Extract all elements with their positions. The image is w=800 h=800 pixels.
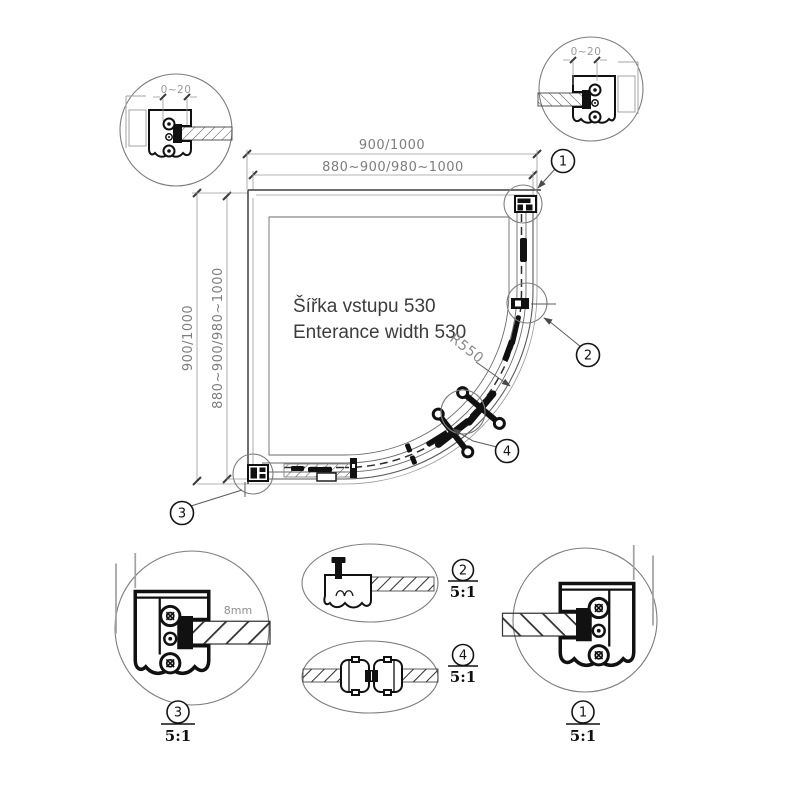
plan-view: 900/1000 880~900/980~1000 900/1000 880~9…: [171, 138, 600, 525]
detail-1-scale: 5:1: [570, 727, 596, 745]
wall-bracket-top-right: [515, 196, 536, 212]
balloon-3-number: 3: [178, 507, 186, 522]
detail-label-3: 3 5:1: [161, 701, 195, 745]
dim-top-inner: 880~900/980~1000: [322, 160, 464, 175]
dim-left-outer: 900/1000: [181, 305, 196, 371]
balloon-2-number: 2: [584, 349, 592, 364]
detail-middle-top: 2 5:1: [302, 544, 478, 622]
glass-section-8mm: [183, 621, 271, 644]
detail-3-scale: 5:1: [165, 727, 191, 745]
guide-block: [317, 473, 336, 481]
entrance-width-label-en: Enterance width 530: [293, 322, 466, 343]
detail-label-1: 1 5:1: [566, 701, 600, 745]
glass-rail-assembly: [255, 206, 537, 484]
detail-2-number: 2: [459, 564, 467, 579]
door-stop-top: [511, 298, 529, 309]
glass-section: [176, 127, 232, 140]
dim-left-inner: 880~900/980~1000: [211, 267, 226, 409]
detail-3-number: 3: [174, 706, 182, 721]
wall-bracket-bottom-left: [248, 465, 268, 481]
detail-4-scale: 5:1: [450, 668, 476, 686]
glass-section: [503, 613, 587, 636]
roller-bottom-2: [308, 467, 332, 472]
detail-top-left: 0~20: [120, 74, 232, 186]
dim-top-outer: 900/1000: [359, 138, 425, 153]
detail-bottom-right: 1 5:1: [503, 545, 658, 745]
detail-label-4: 4 5:1: [448, 645, 478, 687]
balloon-3: 3: [171, 482, 246, 525]
detail-label-2: 2 5:1: [448, 560, 478, 602]
balloon-4-number: 4: [503, 445, 511, 460]
detail-2-scale: 5:1: [450, 583, 476, 601]
magnet-profile-right: [374, 660, 402, 692]
radius-label: R550: [446, 331, 486, 367]
detail-middle-bottom: 4 5:1: [302, 641, 478, 713]
detail-4-number: 4: [459, 649, 467, 664]
detail-top-right: 0~20: [538, 37, 643, 141]
technical-drawing-canvas: 900/1000 880~900/980~1000 900/1000 880~9…: [0, 0, 800, 800]
roller-right: [520, 238, 527, 262]
glass-section: [538, 93, 588, 106]
adjust-range-label-right: 0~20: [571, 46, 602, 58]
roller-bottom-1: [291, 466, 304, 471]
door-stop-bottom: [350, 458, 357, 478]
balloon-1-number: 1: [559, 155, 567, 170]
dimension-top: 900/1000 880~900/980~1000: [243, 138, 541, 291]
balloon-2: 2: [531, 304, 600, 367]
shower-enclosure-drawing: 900/1000 880~900/980~1000 900/1000 880~9…: [0, 0, 800, 800]
detail-1-number: 1: [579, 706, 587, 721]
seal-strip: [335, 561, 342, 579]
glass-thickness-label: 8mm: [224, 604, 252, 617]
magnet-profile-left: [341, 660, 369, 692]
entrance-width-label-cz: Šířka vstupu 530: [293, 295, 436, 317]
balloon-1: 1: [538, 150, 575, 189]
detail-bottom-left: 8mm 3 5:1: [115, 551, 270, 745]
